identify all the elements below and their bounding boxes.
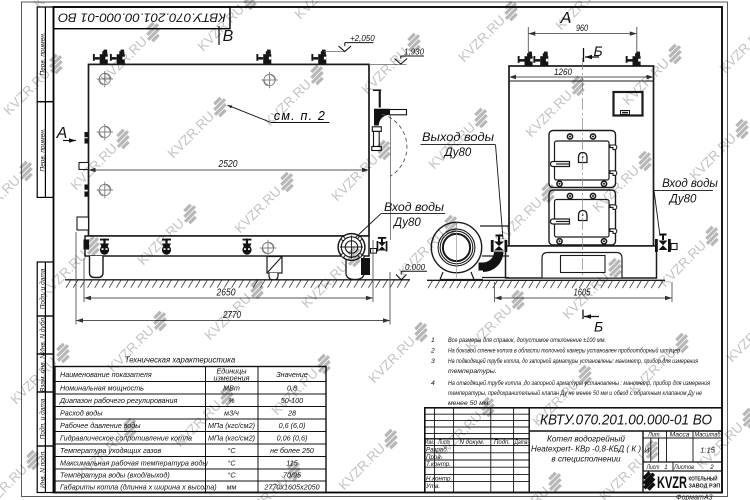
- svg-text:А: А: [56, 125, 68, 142]
- svg-text:°С: °С: [227, 459, 236, 468]
- svg-text:МПа (кгс/см2): МПа (кгс/см2): [208, 434, 255, 443]
- svg-text:960: 960: [576, 23, 589, 34]
- svg-text:4: 4: [431, 380, 435, 387]
- svg-text:2: 2: [430, 348, 435, 355]
- svg-text:2520: 2520: [218, 159, 238, 170]
- svg-text:Инв. N дубл.: Инв. N дубл.: [39, 316, 47, 354]
- svg-text:Расход воды: Расход воды: [60, 409, 103, 418]
- svg-text:Лист: Лист: [646, 464, 660, 471]
- svg-text:Номинальная мощность: Номинальная мощность: [60, 384, 144, 393]
- svg-text:1: 1: [664, 464, 667, 471]
- svg-text:Вход воды: Вход воды: [662, 178, 718, 190]
- svg-text:Изм.: Изм.: [425, 439, 434, 446]
- svg-text:КОТЕЛЬНЫЙ: КОТЕЛЬНЫЙ: [689, 475, 718, 483]
- svg-text:МПа (кгс/см2): МПа (кгс/см2): [208, 421, 255, 430]
- svg-text:Подп. и дата: Подп. и дата: [39, 398, 47, 439]
- svg-text:А3: А3: [703, 495, 713, 500]
- svg-text:Котел водогрейный: Котел водогрейный: [547, 435, 625, 444]
- svg-text:3: 3: [431, 358, 435, 365]
- svg-text:температуры.: температуры.: [448, 368, 497, 375]
- svg-text:°С: °С: [227, 471, 236, 480]
- svg-text:Инв. N подл.: Инв. N подл.: [39, 450, 47, 488]
- svg-text:Дата: Дата: [514, 439, 528, 446]
- svg-text:ЗАВОД РЭП: ЗАВОД РЭП: [689, 484, 721, 490]
- svg-text:Ду80: Ду80: [392, 217, 421, 229]
- svg-text:2650: 2650: [216, 288, 236, 299]
- svg-text:Вход воды: Вход воды: [384, 202, 445, 214]
- svg-text:Б: Б: [594, 319, 603, 335]
- svg-text:28: 28: [287, 409, 296, 418]
- svg-text:КВТУ.070.201.00.000-01 ВО: КВТУ.070.201.00.000-01 ВО: [540, 413, 712, 429]
- svg-text:Утв.: Утв.: [425, 483, 440, 490]
- svg-text:Б: Б: [593, 43, 602, 59]
- svg-text:На боковой стенке котла в обла: На боковой стенке котла в области топочн…: [448, 347, 680, 355]
- svg-text:1: 1: [431, 337, 435, 344]
- svg-text:Формат: Формат: [676, 495, 704, 500]
- svg-text:Масса: Масса: [670, 432, 691, 439]
- svg-text:Лит.: Лит.: [647, 432, 661, 439]
- svg-text:Heatexpert- КВр -0,8-КБД ( К ): Heatexpert- КВр -0,8-КБД ( К ): [531, 445, 641, 454]
- svg-text:Подп.: Подп.: [494, 439, 510, 446]
- svg-text:Габариты котла (длинна х ширин: Габариты котла (длинна х ширина х высота…: [60, 483, 217, 492]
- svg-text:Перв. примен.: Перв. примен.: [40, 128, 47, 171]
- svg-text:+2,050: +2,050: [350, 34, 375, 43]
- svg-text:°С: °С: [227, 446, 236, 455]
- svg-text:м3/ч: м3/ч: [224, 409, 239, 418]
- svg-text:КВТУ.070.201.00.000-01 ВО: КВТУ.070.201.00.000-01 ВО: [58, 11, 226, 23]
- svg-text:Наименование показателя: Наименование показателя: [60, 370, 152, 379]
- svg-text:0,06 (0,6): 0,06 (0,6): [277, 434, 308, 443]
- svg-text:измерения: измерения: [214, 374, 250, 383]
- svg-text:Ду80: Ду80: [668, 194, 697, 206]
- svg-text:не более 250: не более 250: [270, 446, 314, 455]
- svg-text:1260: 1260: [554, 67, 573, 78]
- svg-text:Н.контр.: Н.контр.: [426, 476, 452, 483]
- svg-text:KVZR: KVZR: [657, 473, 687, 492]
- svg-text:0,6 (6,0): 0,6 (6,0): [279, 421, 306, 430]
- svg-text:Листов: Листов: [673, 464, 695, 471]
- svg-text:Т.контр.: Т.контр.: [426, 461, 451, 468]
- svg-text:в специсполнении: в специсполнении: [551, 455, 621, 464]
- svg-text:мм: мм: [227, 483, 237, 492]
- svg-text:Диапазон рабочего регулировани: Диапазон рабочего регулирования: [59, 396, 178, 405]
- svg-text:Техническая характеристика: Техническая характеристика: [125, 356, 236, 365]
